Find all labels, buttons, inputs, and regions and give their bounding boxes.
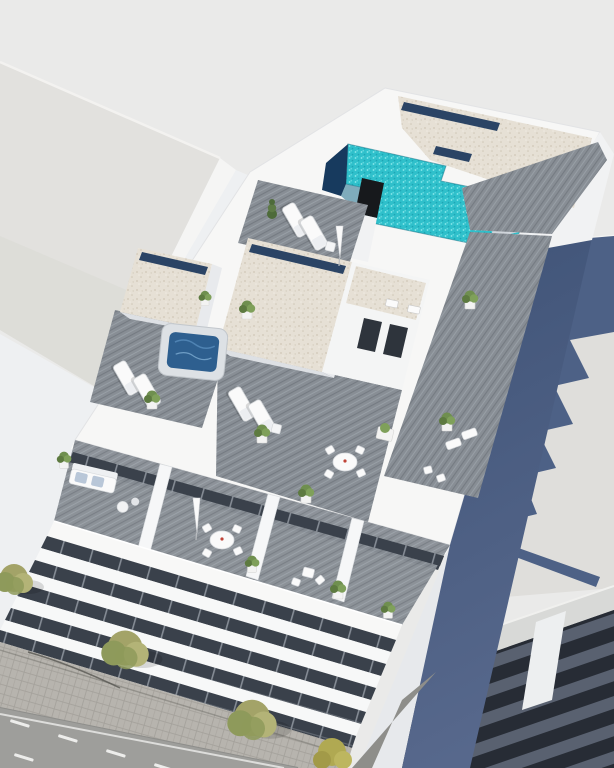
side-table [271,423,282,434]
planter-shrub [380,423,390,433]
hot-tub [157,323,228,382]
table-centerpiece [220,537,223,540]
table-centerpiece [343,459,346,462]
architectural-render [0,0,614,768]
side-table [325,241,336,252]
render-canvas [0,0,614,768]
